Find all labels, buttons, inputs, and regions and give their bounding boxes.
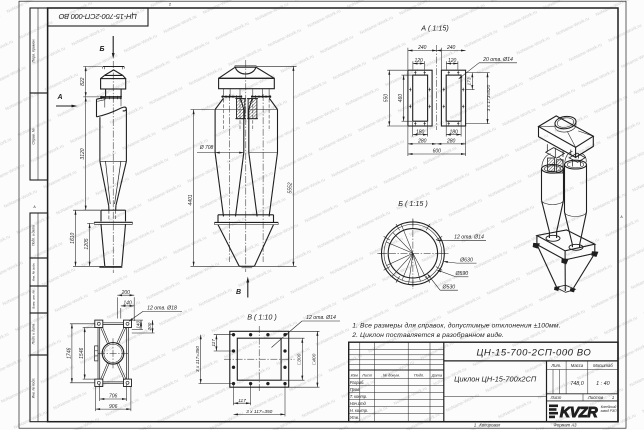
svg-text:Лит.: Лит. [550,363,561,368]
svg-text:Копировал: Копировал [479,422,500,427]
svg-text:600: 600 [433,149,442,155]
svg-text:173: 173 [467,77,473,85]
svg-text:Пров.: Пров. [350,387,361,392]
svg-text:Взам. инв. №: Взам. инв. № [32,289,36,308]
svg-text:Б: Б [100,46,105,53]
svg-text:748,0: 748,0 [570,381,584,387]
svg-text:180: 180 [449,129,458,135]
svg-text:А: А [56,94,62,101]
svg-text:5552: 5552 [288,182,294,193]
svg-text:1546: 1546 [79,348,85,359]
svg-text:Масштаб: Масштаб [593,363,613,368]
svg-text:Нач.отд: Нач.отд [350,401,367,406]
svg-text:1: 1 [474,422,476,427]
svg-text:1610: 1610 [70,232,76,243]
svg-text:Ø590: Ø590 [454,271,468,277]
svg-text:20 отв. Ø14: 20 отв. Ø14 [482,57,513,63]
svg-text:3 x 173=520: 3 x 173=520 [486,85,492,112]
svg-text:□300: □300 [297,353,303,364]
svg-text:1: 1 [612,395,614,400]
svg-text:Подп. и дата: Подп. и дата [32,225,36,246]
svg-text:200: 200 [147,322,152,331]
svg-text:550: 550 [384,94,390,103]
svg-text:Ø 708: Ø 708 [199,145,214,151]
svg-text:140: 140 [123,301,132,307]
svg-text:Ø530: Ø530 [441,284,455,290]
svg-text:Т. контр.: Т. контр. [350,394,368,399]
svg-text:3 x 117=350: 3 x 117=350 [195,346,201,373]
svg-text:3 x 117=350: 3 x 117=350 [246,409,273,415]
svg-text:Дата: Дата [431,373,443,378]
svg-text:В ( 1:10 ): В ( 1:10 ) [247,313,277,322]
svg-text:Подп.: Подп. [414,373,424,378]
svg-text:□400: □400 [312,353,318,364]
svg-text:Масса: Масса [571,363,584,368]
svg-text:Б ( 1:15 ): Б ( 1:15 ) [398,199,427,208]
svg-text:180: 180 [416,129,425,135]
svg-text:Ø630: Ø630 [459,257,473,263]
svg-text:12 отв. Ø14: 12 отв. Ø14 [454,234,484,240]
svg-text:120: 120 [414,58,423,64]
svg-text:906: 906 [109,404,118,410]
svg-text:Справ. №: Справ. № [32,128,36,144]
svg-text:В: В [236,289,241,296]
svg-text:280: 280 [417,139,427,145]
svg-text:Циклон ЦН-15-700х2СП: Циклон ЦН-15-700х2СП [454,375,537,384]
svg-text:ЦН-15-700-2СП-000 ВО: ЦН-15-700-2СП-000 ВО [58,12,136,21]
svg-text:822: 822 [80,77,86,86]
svg-text:Инв. № дубл.: Инв. № дубл. [32,263,36,282]
svg-text:240: 240 [417,45,427,51]
svg-text:Разраб.: Разраб. [350,380,365,385]
svg-text:ЦН-15-700-2СП-000 ВО: ЦН-15-700-2СП-000 ВО [476,347,591,358]
svg-text:А ( 1:15): А ( 1:15) [420,24,449,33]
svg-text:117: 117 [238,398,246,404]
svg-text:3120: 3120 [80,148,86,159]
svg-text:460: 460 [398,94,404,103]
svg-text:706: 706 [109,394,118,400]
svg-text:4401: 4401 [188,194,194,205]
svg-text:Утв.: Утв. [350,415,359,420]
svg-text:Подп. и дата: Подп. и дата [32,324,36,345]
svg-text:Изм: Изм [351,373,359,378]
svg-text:1746: 1746 [66,348,72,359]
svg-text:Инв. № подл.: Инв. № подл. [32,378,36,399]
svg-text:Н. контр.: Н. контр. [350,408,368,413]
svg-text:280: 280 [446,139,456,145]
svg-text:120: 120 [448,58,457,64]
svg-text:1. Все размеры для справок, до: 1. Все размеры для справок, допустимые о… [352,321,560,329]
svg-text:№ докум.: № докум. [383,373,400,378]
svg-text:Лист: Лист [361,373,373,378]
svg-text:Перв. примен.: Перв. примен. [32,39,36,63]
svg-text:140: 140 [135,321,140,329]
svg-text:Формат А3: Формат А3 [554,422,578,427]
svg-text:Лист: Лист [550,395,562,400]
svg-text:завод РЭП: завод РЭП [600,409,618,413]
svg-text:Листов: Листов [587,395,604,400]
svg-text:1 : 40: 1 : 40 [596,381,610,387]
svg-text:240: 240 [446,45,456,51]
svg-text:1205: 1205 [84,238,90,249]
svg-text:117: 117 [211,339,217,347]
svg-text:2. Циклон поставляется в разоб: 2. Циклон поставляется в разобранном вид… [351,331,504,339]
svg-text:12 отв. Ø18: 12 отв. Ø18 [147,306,177,312]
svg-text:200: 200 [121,290,131,296]
svg-text:KVZR: KVZR [560,405,599,421]
svg-text:12 отв. Ø14: 12 отв. Ø14 [306,315,336,321]
